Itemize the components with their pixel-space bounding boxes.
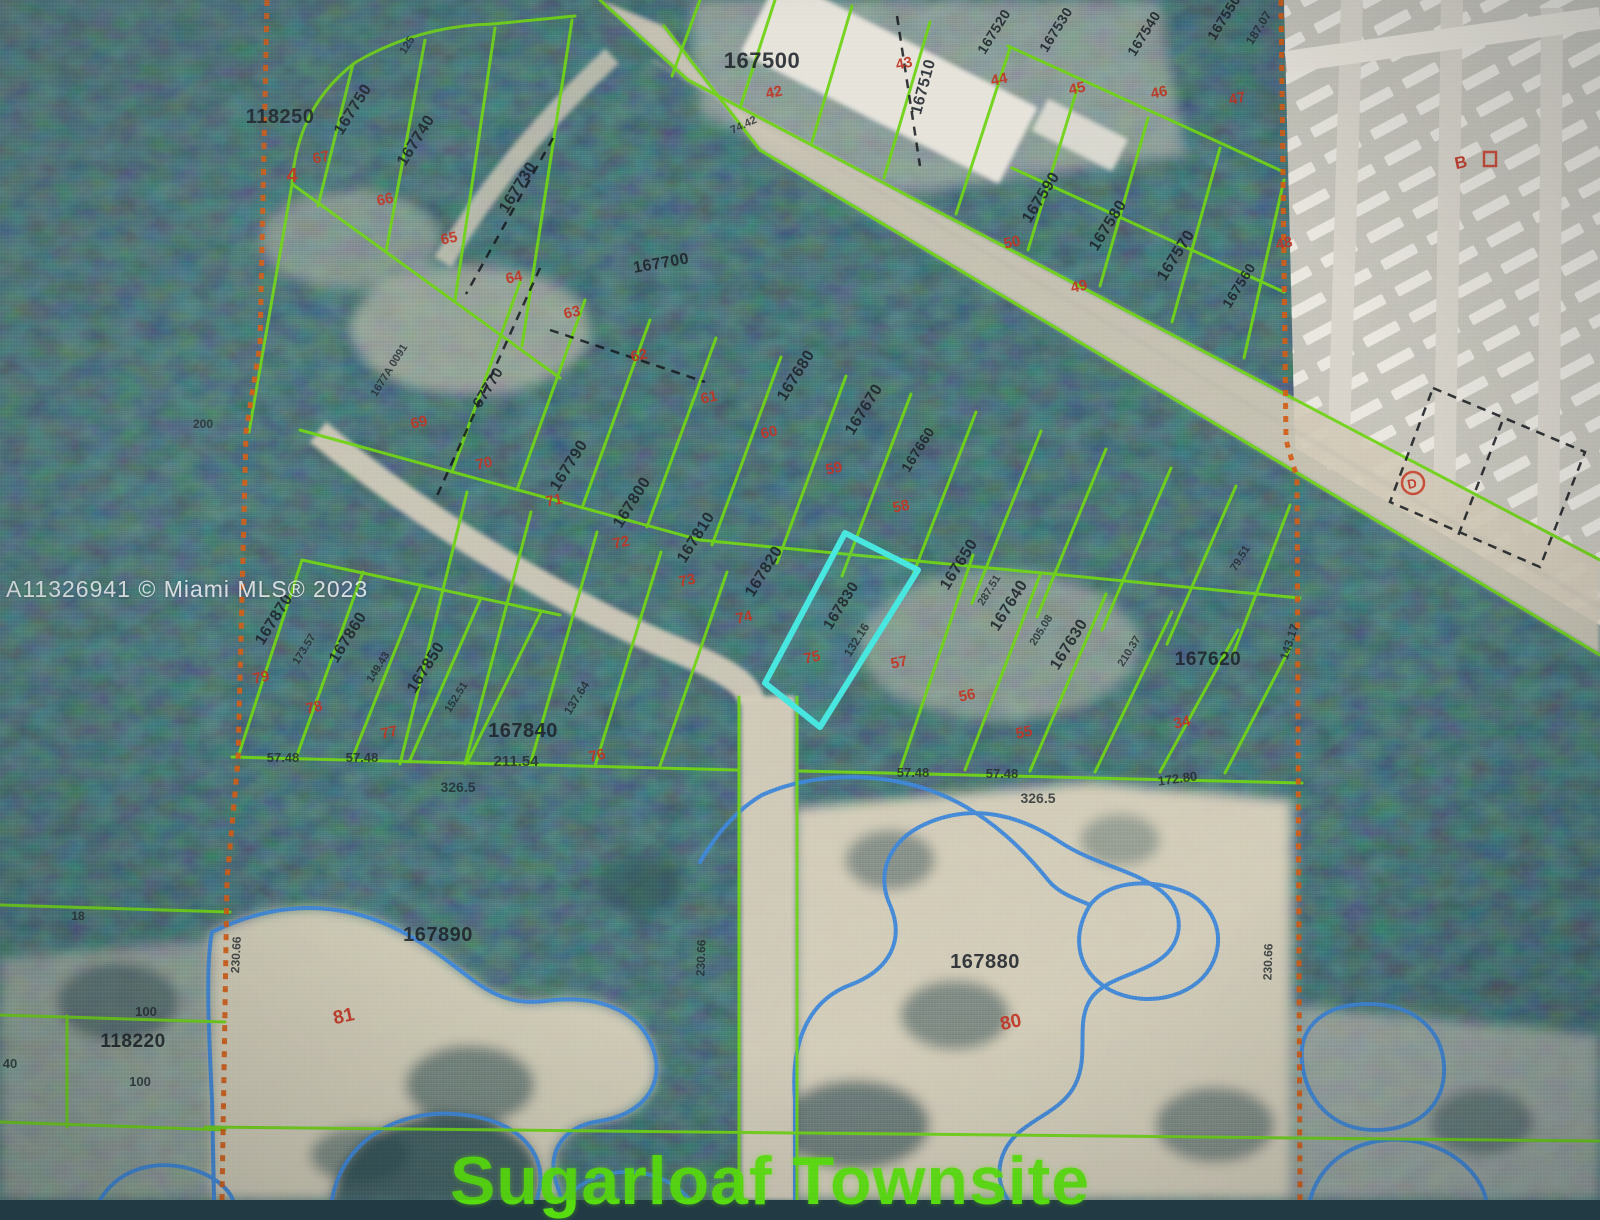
meas-57-48-b: 57.48 [346,750,379,765]
lot-48: 48 [1274,234,1294,254]
meas-18: 18 [71,909,85,923]
lot-55: 55 [1014,723,1034,743]
meas-200: 200 [193,417,213,431]
lot-42: 42 [764,83,784,103]
lot-71: 71 [544,491,564,511]
lot-59: 59 [824,459,844,479]
lot-58: 58 [891,497,911,517]
lot-75: 75 [802,648,822,668]
parcel-118250: 118250 [246,106,315,128]
lot-70: 70 [474,454,494,474]
lot-77: 77 [379,723,399,743]
meas-100-a: 100 [135,1004,157,1019]
meas-211-54: 211.54 [493,753,539,770]
lot-73: 73 [677,571,697,591]
lot-76: 76 [587,746,607,766]
lot-47: 47 [1227,89,1247,109]
meas-326-5-a: 326.5 [440,779,475,795]
lot-50: 50 [1002,233,1022,253]
lot-63: 63 [562,303,582,323]
lot-49: 49 [1069,277,1089,297]
meas-100-b: 100 [129,1074,151,1089]
meas-57-48-c: 57.48 [897,765,930,780]
meas-40: 40 [3,1056,17,1071]
meas-230-66-a: 230.66 [228,936,244,974]
meas-230-66-b: 230.66 [693,939,708,976]
townsite-label: Sugarloaf Townsite [450,1142,1090,1220]
lot-4: 4 [286,165,298,187]
meas-57-48-a: 57.48 [267,750,300,765]
lot-78: 78 [304,698,324,718]
parcel-167840: 167840 [488,720,558,742]
meas-326-5-b: 326.5 [1020,790,1055,806]
lot-46: 46 [1149,83,1169,103]
lot-69: 69 [409,413,429,433]
lot-65: 65 [439,229,459,249]
lot-56: 56 [957,686,977,706]
parcel-167880: 167880 [950,951,1020,973]
lot-60: 60 [759,423,779,443]
lot-43: 43 [894,54,914,74]
lot-72: 72 [611,533,631,553]
meas-57-48-d: 57.48 [986,766,1019,781]
lot-45: 45 [1067,79,1087,99]
parcel-118220: 118220 [100,1031,165,1052]
parcel-167890: 167890 [403,924,473,946]
mls-watermark: A11326941 © Miami MLS® 2023 [6,576,368,603]
parcel-167620: 167620 [1175,649,1241,670]
parcel-167500: 167500 [724,48,800,73]
lot-79: 79 [251,668,271,688]
lot-80: 80 [998,1010,1023,1035]
lot-57: 57 [889,653,909,673]
lot-67: 67 [311,148,331,168]
meas-230-66-c: 230.66 [1260,943,1275,980]
lot-62: 62 [629,346,649,366]
lot-61: 61 [699,388,719,408]
lot-66: 66 [375,190,395,210]
aerial-parcel-map: 1182504167750167740167730677701677A 0091… [0,0,1600,1200]
